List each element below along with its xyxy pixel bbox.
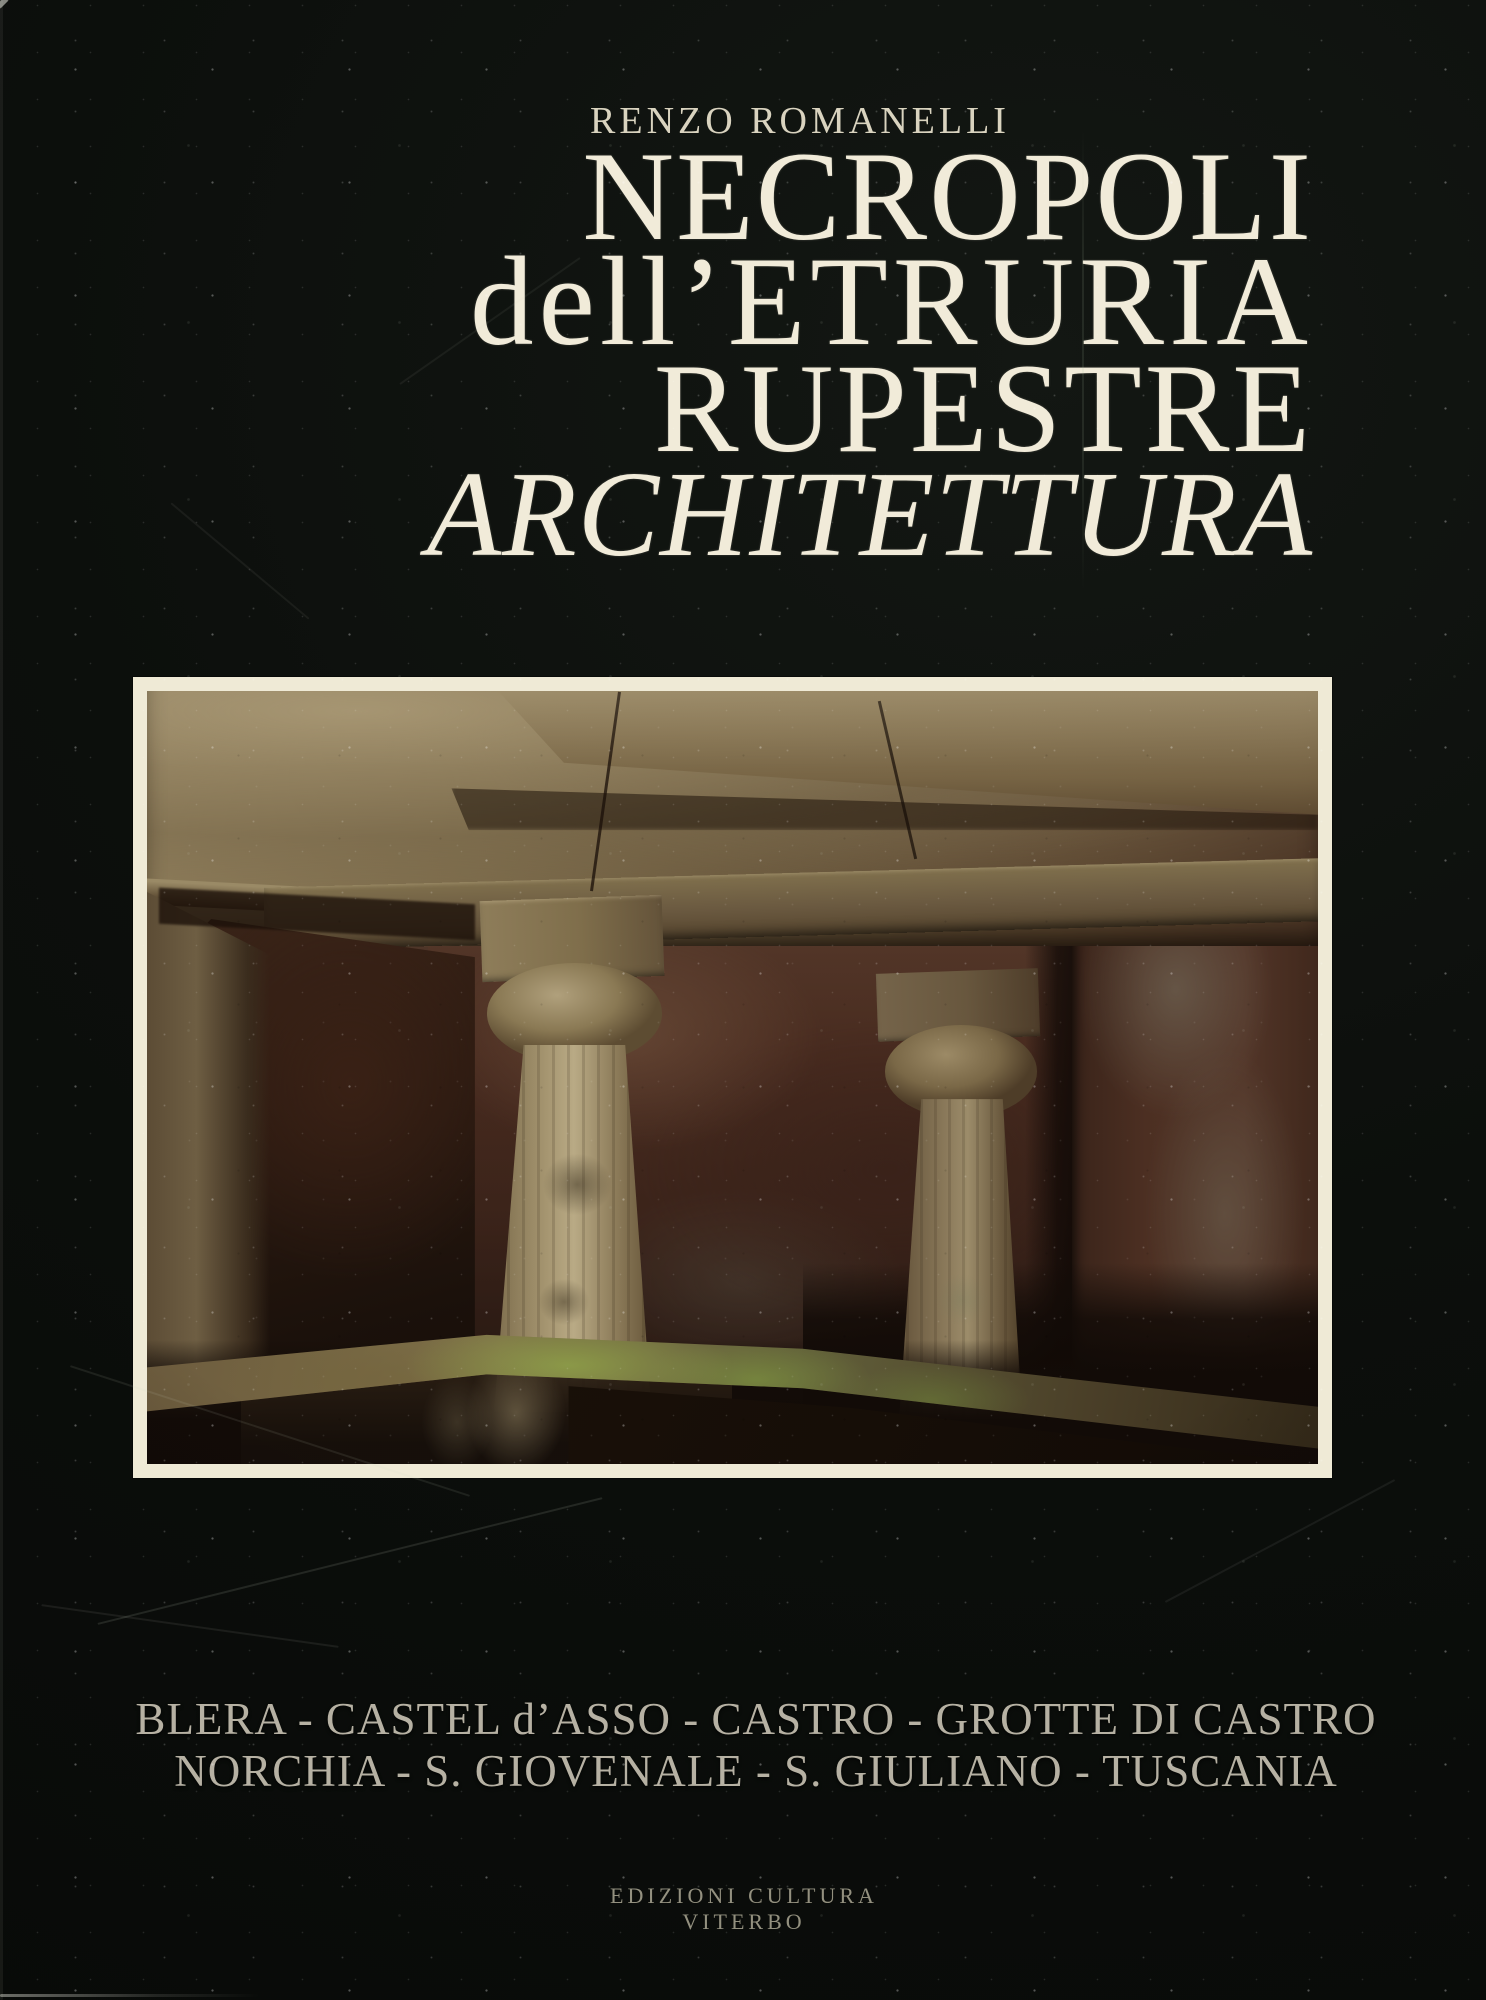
left-edge-sheen [0, 0, 3, 2000]
book-cover: RENZO ROMANELLI NECROPOLI dell’ETRURIA R… [0, 0, 1486, 2000]
scratch-mark [170, 502, 309, 619]
sites-list-line-2: NORCHIA - S. GIOVENALE - S. GIULIANO - T… [174, 1745, 1338, 1797]
scratch-mark [1165, 1479, 1396, 1603]
title-line-4-italic: ARCHITETTURA [427, 454, 1313, 576]
photo-frame [133, 677, 1332, 1478]
scratch-mark [41, 1604, 338, 1648]
bottom-edge-wear [0, 1994, 260, 1997]
sites-list-line-1: BLERA - CASTEL d’ASSO - CASTRO - GROTTE … [135, 1693, 1376, 1745]
scratch-mark [97, 1497, 602, 1625]
publisher-name: EDIZIONI CULTURA [610, 1883, 878, 1909]
publisher-city: VITERBO [682, 1909, 805, 1935]
corner-wear [0, 0, 9, 9]
tomb-photo [147, 691, 1318, 1464]
